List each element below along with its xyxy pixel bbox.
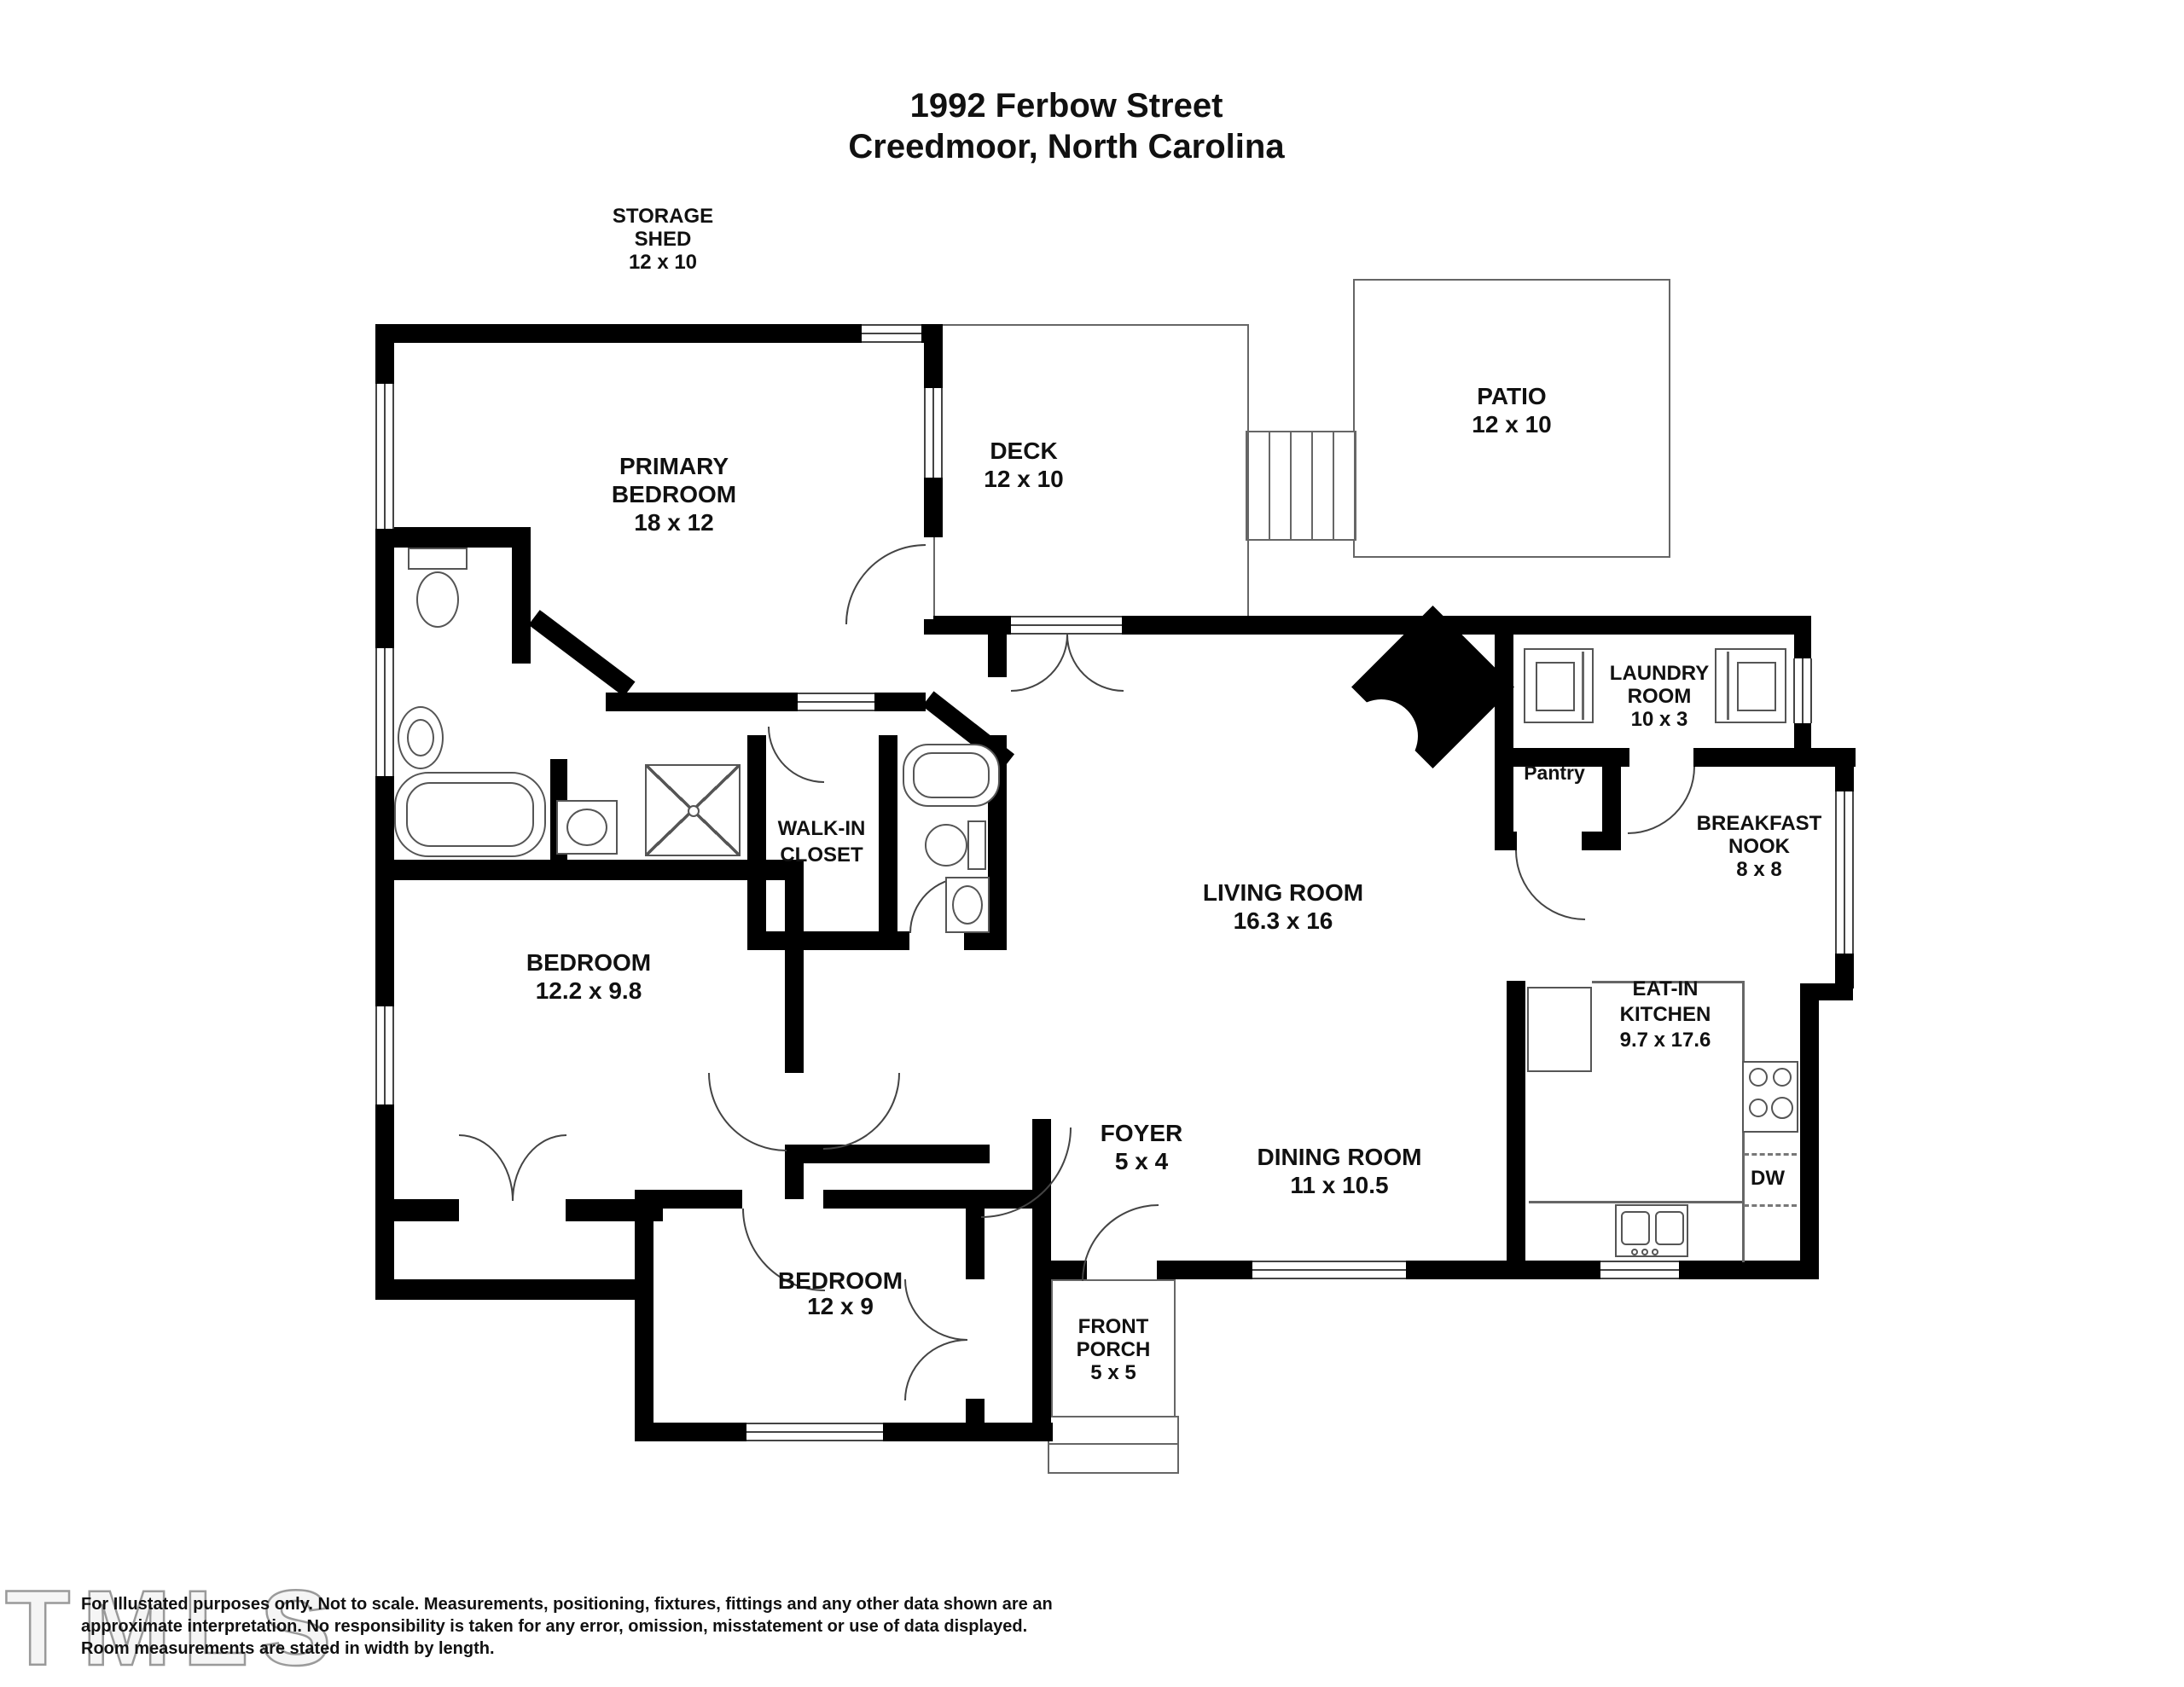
page-title: 1992 Ferbow Street Creedmoor, North Caro… (848, 85, 1284, 167)
vanity-sink-icon (566, 809, 607, 846)
label-dishwasher: DW (1751, 1167, 1785, 1190)
room-dims: 12 x 10 (984, 465, 1063, 493)
room-name: DINING ROOM (1258, 1143, 1422, 1171)
dryer-door-icon (1737, 662, 1776, 711)
burner-icon (1749, 1099, 1768, 1117)
room-dims: 5 x 4 (1101, 1147, 1182, 1175)
burner-icon (1773, 1068, 1792, 1087)
address-line: 1992 Ferbow Street (848, 85, 1284, 126)
room-label-patio: PATIO 12 x 10 (1472, 382, 1551, 438)
window (375, 648, 394, 776)
wall (376, 1199, 459, 1221)
sliding-door-window (1011, 616, 1122, 635)
bathtub2-inner-icon (913, 752, 990, 798)
room-name: PORCH (1077, 1338, 1151, 1361)
shower-drain-icon (688, 805, 700, 817)
door-arc-bedroom3-closet-a (904, 1279, 967, 1341)
room-label-storage-shed: STORAGE SHED 12 x 10 (613, 205, 713, 274)
city-line: Creedmoor, North Carolina (848, 126, 1284, 167)
door-arc-front-door (1082, 1204, 1159, 1281)
room-name: DECK (984, 437, 1063, 465)
room-name: FRONT (1077, 1315, 1151, 1338)
room-name: BEDROOM (612, 480, 736, 508)
door-arc-bedroom2-closet-b (512, 1134, 566, 1201)
porch-step-2 (1048, 1443, 1179, 1474)
room-label-deck: DECK 12 x 10 (984, 437, 1063, 493)
window (375, 1006, 394, 1104)
room-dims: 18 x 12 (612, 508, 736, 536)
room-label-living-room: LIVING ROOM 16.3 x 16 (1203, 878, 1363, 935)
wall (1032, 1261, 1051, 1441)
room-label-bedroom3: BEDROOM 12 x 9 (778, 1268, 903, 1319)
refrigerator-icon (1527, 987, 1592, 1072)
wall (1582, 832, 1621, 850)
faucet-dot (1641, 1249, 1648, 1255)
faucet-dot (1652, 1249, 1658, 1255)
door-arc-deck-door-b (1066, 635, 1124, 692)
room-name: CLOSET (778, 842, 866, 868)
wall (988, 635, 1007, 677)
wall (1800, 983, 1819, 1279)
diagonal-wall (528, 610, 635, 697)
wall (785, 1145, 990, 1163)
room-name: KITCHEN (1620, 1002, 1711, 1028)
room-name: LAUNDRY (1610, 662, 1709, 685)
toilet2-bowl-icon (925, 824, 967, 867)
deck-outline (933, 324, 1249, 626)
dishwasher-dash (1744, 1204, 1797, 1207)
toilet-tank-icon (408, 548, 468, 570)
wall (933, 616, 1011, 635)
window (1252, 1261, 1406, 1279)
wall (966, 1209, 985, 1279)
dishwasher-dash (1744, 1153, 1797, 1156)
sink-basin-right-icon (1655, 1211, 1684, 1245)
wall (375, 860, 785, 880)
wall (1406, 1261, 1508, 1279)
wall (1693, 748, 1856, 767)
room-name: EAT-IN (1620, 977, 1711, 1002)
room-label-pantry: Pantry (1524, 762, 1585, 785)
room-dims: 12 x 9 (778, 1294, 903, 1319)
room-label-primary-bedroom: PRIMARY BEDROOM 18 x 12 (612, 452, 736, 536)
window (1835, 791, 1854, 954)
room-dims: 10 x 3 (1610, 708, 1709, 731)
disclaimer-line: Room measurements are stated in width by… (81, 1638, 1053, 1660)
room-label-bedroom2: BEDROOM 12.2 x 9.8 (526, 948, 651, 1005)
room-dims: 8 x 8 (1697, 858, 1822, 881)
wall (1032, 1261, 1087, 1279)
counter-edge (1529, 1201, 1744, 1203)
fireplace-hearth-arc (1345, 699, 1418, 773)
room-name: LIVING ROOM (1203, 878, 1363, 907)
dryer-panel-line (1727, 652, 1729, 720)
wall (924, 478, 943, 537)
room-name: BEDROOM (526, 948, 651, 977)
window (375, 384, 394, 529)
wall (966, 1399, 985, 1441)
wall (747, 735, 766, 950)
room-label-walk-in-closet: WALK-IN CLOSET (778, 815, 866, 868)
door-arc-primary-bedroom (845, 544, 926, 624)
wall (1157, 1261, 1252, 1279)
washer-panel-line (1582, 652, 1584, 720)
burner-icon (1749, 1068, 1768, 1087)
sink2-icon (952, 885, 983, 925)
wall (1507, 981, 1525, 1279)
burner-icon (1771, 1097, 1793, 1119)
washer-door-icon (1536, 662, 1575, 711)
porch-step-1 (1048, 1416, 1179, 1446)
window (1600, 1261, 1679, 1279)
wall (924, 324, 943, 388)
wall (635, 1190, 742, 1209)
deck-patio-steps (1246, 431, 1356, 541)
door-arc-bedroom3-closet-b (904, 1339, 967, 1400)
room-label-eat-in-kitchen: EAT-IN KITCHEN 9.7 x 17.6 (1620, 977, 1711, 1053)
door-arc-laundry-nook (1628, 767, 1695, 834)
room-name: BEDROOM (778, 1268, 903, 1294)
room-dims: 11 x 10.5 (1258, 1171, 1422, 1199)
wall (375, 1279, 653, 1300)
wall (1122, 616, 1810, 635)
room-name: PRIMARY (612, 452, 736, 480)
bathtub-inner-icon (406, 782, 534, 847)
toilet-bowl-icon (416, 571, 459, 628)
disclaimer-line: For Illustated purposes only. Not to sca… (81, 1593, 1053, 1615)
door-arc-hall-foyer (981, 1128, 1072, 1218)
sink-basin-icon (407, 719, 434, 757)
room-dims: 5 x 5 (1077, 1361, 1151, 1384)
room-dims: 16.3 x 16 (1203, 907, 1363, 935)
door-arc-deck-door-a (1011, 635, 1068, 692)
wall (747, 931, 897, 950)
wall (879, 735, 897, 950)
room-name: PATIO (1472, 382, 1551, 410)
wall (606, 693, 798, 711)
wall (1495, 832, 1517, 850)
wall (394, 527, 531, 548)
wall (924, 619, 943, 635)
room-name: STORAGE (613, 205, 713, 228)
door-arc-bedroom2 (708, 1073, 787, 1151)
wall (512, 527, 531, 664)
wall (785, 860, 804, 1073)
door-arc-walkin-closet (768, 727, 824, 783)
wall (375, 324, 943, 343)
room-label-breakfast-nook: BREAKFAST NOOK 8 x 8 (1697, 812, 1822, 881)
disclaimer-text: For Illustated purposes only. Not to sca… (81, 1593, 1053, 1660)
room-label-dining-room: DINING ROOM 11 x 10.5 (1258, 1143, 1422, 1199)
room-dims: 12 x 10 (1472, 410, 1551, 438)
sink-basin-left-icon (1621, 1211, 1650, 1245)
room-label-laundry: LAUNDRY ROOM 10 x 3 (1610, 662, 1709, 731)
wall (874, 693, 926, 711)
door-arc-pantry (1515, 850, 1585, 920)
disclaimer-line: approximate interpretation. No responsib… (81, 1615, 1053, 1638)
room-name: ROOM (1610, 685, 1709, 708)
room-name: SHED (613, 228, 713, 251)
window (798, 693, 874, 711)
room-label-foyer: FOYER 5 x 4 (1101, 1119, 1182, 1175)
wall (879, 931, 909, 950)
room-name: BREAKFAST (1697, 812, 1822, 835)
toilet2-tank-icon (967, 820, 986, 870)
window (746, 1423, 883, 1441)
room-name: NOOK (1697, 835, 1822, 858)
door-arc-bedroom2-closet-a (459, 1134, 514, 1201)
room-dims: 12 x 10 (613, 251, 713, 274)
room-dims: 9.7 x 17.6 (1620, 1028, 1711, 1053)
appliance-name: DW (1751, 1167, 1785, 1190)
faucet-dot (1631, 1249, 1638, 1255)
window (862, 324, 921, 343)
room-name: WALK-IN (778, 815, 866, 842)
room-name: FOYER (1101, 1119, 1182, 1147)
room-label-front-porch: FRONT PORCH 5 x 5 (1077, 1315, 1151, 1384)
room-dims: 12.2 x 9.8 (526, 977, 651, 1005)
door-arc-hall (823, 1073, 900, 1150)
room-name: Pantry (1524, 762, 1585, 785)
wall (964, 931, 1007, 950)
wall (635, 1208, 653, 1441)
floor-plan-canvas: 1992 Ferbow Street Creedmoor, North Caro… (0, 0, 2184, 1687)
window (924, 388, 943, 478)
window (1793, 658, 1812, 723)
